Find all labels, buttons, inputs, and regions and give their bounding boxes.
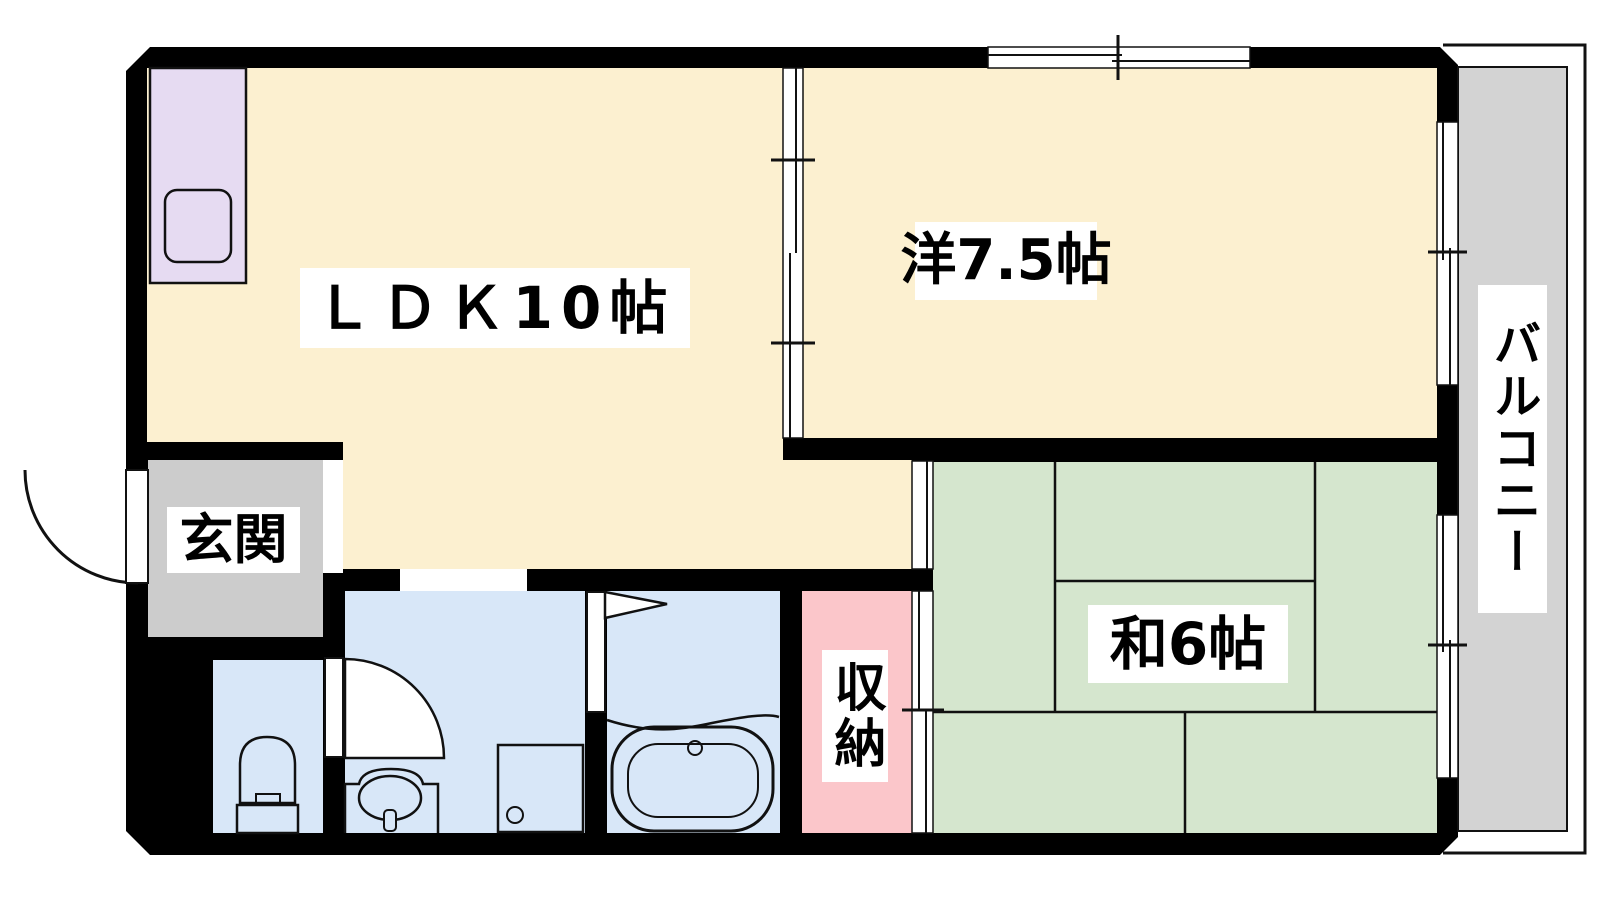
floor-plan-page: ＬＤＫ10帖 洋7.5帖 和6帖 玄関 収納 バルコニー xyxy=(0,0,1600,900)
ldk-lower-area xyxy=(343,442,783,569)
front-door xyxy=(25,470,148,583)
entrance-label: 玄関 xyxy=(167,507,300,573)
western-room-area xyxy=(803,68,1437,438)
japanese-room-entry-fusuma xyxy=(912,461,933,569)
kitchen-counter xyxy=(150,68,246,283)
front-door-swing-arc xyxy=(25,470,138,583)
floor-plan-drawing xyxy=(0,0,1600,900)
bathroom-area xyxy=(607,591,780,833)
bathroom-door-leaf xyxy=(587,592,605,712)
ldk-corridor-area xyxy=(783,460,912,569)
western-room-label: 洋7.5帖 xyxy=(915,222,1097,300)
toilet-room-area xyxy=(213,660,323,833)
storage-label: 収納 xyxy=(822,650,888,782)
balcony-label: バルコニー xyxy=(1478,285,1547,613)
front-door-leaf xyxy=(126,470,148,583)
entrance-step-opening xyxy=(323,460,343,573)
washroom-opening xyxy=(400,569,527,591)
japanese-room-label: 和6帖 xyxy=(1088,605,1288,683)
toilet-door-leaf xyxy=(325,658,343,757)
ldk-room-label: ＬＤＫ10帖 xyxy=(300,268,690,348)
